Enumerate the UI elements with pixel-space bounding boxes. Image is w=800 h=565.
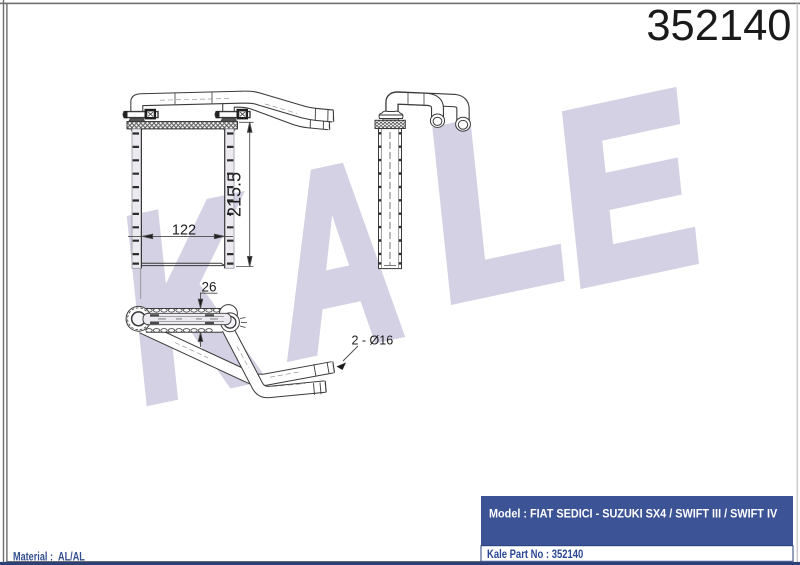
svg-text:E: E	[548, 38, 708, 338]
svg-text:26: 26	[201, 279, 216, 294]
svg-text:Model : FIAT SEDICI - SUZUKI S: Model : FIAT SEDICI - SUZUKI SX4 / SWIFT…	[489, 508, 778, 521]
svg-text:Kale Part No : 352140: Kale Part No : 352140	[487, 548, 583, 561]
svg-text:Material : AL/AL: Material : AL/AL	[13, 550, 85, 564]
svg-text:2 - Ø16: 2 - Ø16	[352, 334, 394, 348]
svg-text:215.5: 215.5	[225, 172, 245, 217]
svg-text:352140: 352140	[646, 2, 791, 50]
svg-text:122: 122	[172, 223, 196, 239]
